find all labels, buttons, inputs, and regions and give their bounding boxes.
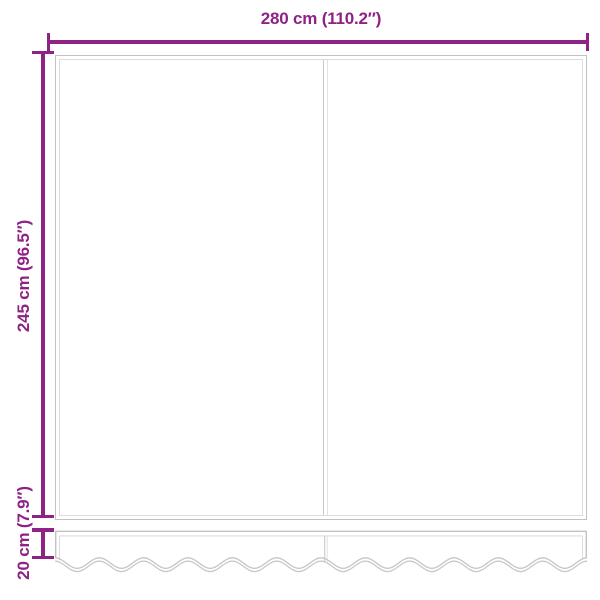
valance-wavy-edge-inner — [55, 561, 587, 572]
valance-wavy-edge-outer — [55, 558, 587, 569]
dimension-diagram: 280 cm (110.2″) 245 cm (96.5″) 20 cm (7.… — [0, 0, 600, 600]
valance-strip — [0, 0, 600, 600]
